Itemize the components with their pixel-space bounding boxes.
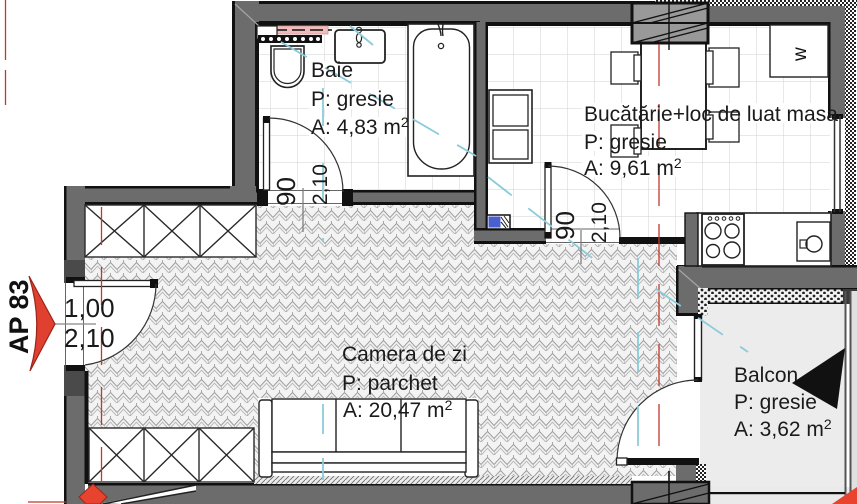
svg-text:AP 83: AP 83 [4, 279, 34, 354]
svg-text:Baie: Baie [311, 59, 353, 82]
svg-text:A: 20,47 m2: A: 20,47 m2 [343, 397, 453, 422]
svg-text:Camera de zi: Camera de zi [342, 343, 467, 366]
svg-text:2,10: 2,10 [309, 164, 332, 205]
svg-text:A: 3,62 m2: A: 3,62 m2 [734, 416, 832, 441]
svg-text:A: 4,83 m2: A: 4,83 m2 [311, 114, 409, 139]
svg-text:Balcon: Balcon [734, 364, 798, 387]
svg-text:P: gresie: P: gresie [311, 88, 394, 111]
svg-text:90: 90 [271, 177, 301, 206]
svg-text:P: gresie: P: gresie [584, 131, 667, 154]
svg-text:90: 90 [550, 211, 580, 240]
svg-text:1,00: 1,00 [64, 293, 115, 323]
svg-text:2,10: 2,10 [588, 202, 611, 243]
svg-text:P: gresie: P: gresie [734, 391, 817, 414]
svg-text:w: w [790, 47, 811, 62]
svg-text:2,10: 2,10 [64, 323, 115, 353]
svg-text:Bucătărie+loc de luat masa: Bucătărie+loc de luat masa [584, 103, 838, 126]
svg-text:P: parchet: P: parchet [342, 372, 438, 395]
svg-text:A: 9,61 m2: A: 9,61 m2 [584, 155, 682, 180]
